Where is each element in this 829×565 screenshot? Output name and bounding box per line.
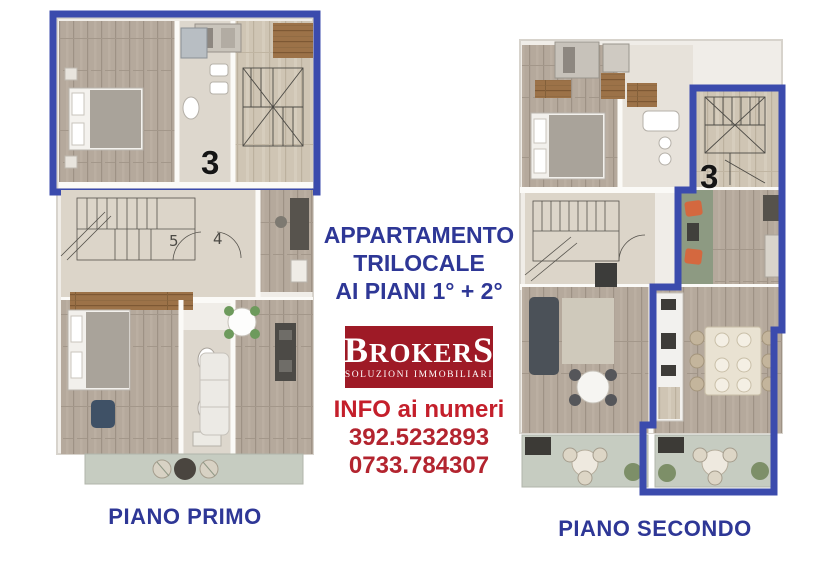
contact-heading: INFO ai numeri [310,396,528,424]
plan2-balconies [522,435,774,487]
brokers-logo-wordmark: BROKERS [344,335,494,367]
door-number-4: 4 [213,232,223,247]
door-number-5: 5 [169,234,179,249]
sofa [200,353,229,435]
toilet [183,97,199,119]
sink [210,64,228,76]
bed2 [68,310,130,390]
sink [659,153,671,165]
bed [531,113,605,179]
dark-wood-strip [70,292,193,310]
stair-hall-floor [525,193,655,287]
dark-wood-strip [273,23,313,58]
dark-wood-strip [535,80,571,98]
orange-chair [684,248,703,265]
rug [562,298,614,364]
plant [624,463,642,481]
phone-number-1: 392.5232893 [310,424,528,452]
unit-number-second-floor: 3 [700,160,718,193]
first-floor-plan-drawing [45,8,325,488]
balcony-table [174,458,196,480]
kitchen-strip [656,293,683,421]
orange-chair [684,200,703,217]
title-line-3: AI PIANI 1° + 2° [314,277,524,305]
logo-letter-first: B [344,335,369,365]
title-line-1: APPARTAMENTO [314,221,524,249]
bathtub [643,111,679,131]
stair-landing [595,263,617,287]
caption-second-floor: PIANO SECONDO [505,516,805,542]
logo-letter-last: S [473,335,494,365]
armchair [91,400,115,428]
dark-wood-strip [601,73,625,99]
brokers-logo: BROKERS SOLUZIONI IMMOBILIARI [345,326,493,388]
second-floor-plan-drawing [515,35,795,525]
unit-number-first-floor: 3 [201,146,219,179]
brokers-logo-tagline: SOLUZIONI IMMOBILIARI [345,370,493,380]
sink [659,137,671,149]
listing-title: APPARTAMENTO TRILOCALE AI PIANI 1° + 2° [314,221,524,305]
cabinet [763,195,779,221]
dining-table [224,306,260,339]
closet [603,44,629,72]
logo-letters-middle: ROKER [369,340,473,367]
plant [751,462,769,480]
sink [210,82,228,94]
caption-first-floor: PIANO PRIMO [45,504,325,530]
planter-box [525,437,551,455]
shelf [765,235,779,277]
title-line-2: TRILOCALE [314,249,524,277]
dark-wood-strip [627,83,657,107]
plan1-balcony [85,454,303,484]
stair-hall-floor [61,190,258,300]
loggia-table [687,223,699,241]
staircase-upper [243,68,303,146]
shower [181,28,207,58]
plan1-middle-section [61,190,313,300]
sofa [529,297,614,375]
phone-number-2: 0733.784307 [310,452,528,480]
plan1-upper-unit [53,14,317,192]
plant [658,464,676,482]
contact-block: INFO ai numeri 392.5232893 0733.784307 [310,396,528,480]
plan2-middle-section [520,190,782,287]
dining-table [690,327,776,395]
planter-box [658,437,684,453]
wardrobe [555,42,599,78]
